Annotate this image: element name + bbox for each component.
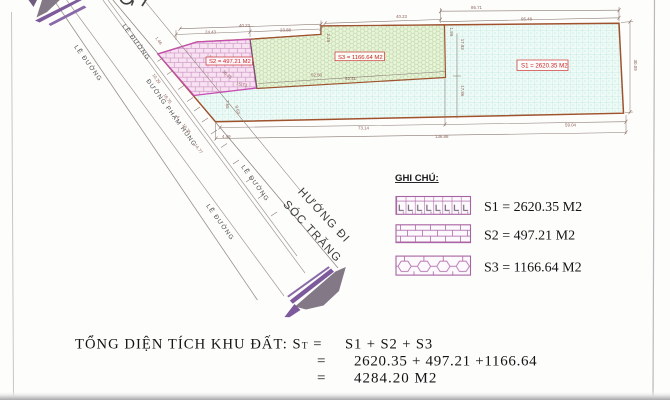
svg-text:52.50: 52.50 <box>311 73 323 78</box>
svg-text:40.23: 40.23 <box>396 14 408 19</box>
svg-text:62.41: 62.41 <box>345 76 357 81</box>
svg-text:73.14: 73.14 <box>358 126 370 131</box>
svg-text:TỔNG DIỆN TÍCH KHU ĐẤT: ST =S1: TỔNG DIỆN TÍCH KHU ĐẤT: ST =S1 + S2 + S3 <box>75 335 433 353</box>
svg-text:86.71: 86.71 <box>471 5 483 10</box>
svg-text:S2 = 497.21 M2: S2 = 497.21 M2 <box>209 59 251 65</box>
svg-text:GHI CHÚ:: GHI CHÚ: <box>395 172 439 184</box>
svg-text:136.88: 136.88 <box>435 134 449 139</box>
svg-text:59.04: 59.04 <box>565 123 577 128</box>
svg-text:2.19: 2.19 <box>326 34 331 43</box>
svg-text:95.48: 95.48 <box>521 16 533 21</box>
svg-text:S1 = 2620.35 M2: S1 = 2620.35 M2 <box>521 63 568 70</box>
svg-text:1.99: 1.99 <box>449 28 454 37</box>
svg-text:40.23: 40.23 <box>239 23 251 28</box>
svg-text:17.93: 17.93 <box>460 39 465 51</box>
svg-text:23.88: 23.88 <box>280 28 292 33</box>
svg-text:S3 = 1166.64 M2: S3 = 1166.64 M2 <box>338 55 383 61</box>
svg-text:17.86: 17.86 <box>460 85 465 97</box>
svg-text:30.09: 30.09 <box>633 60 638 72</box>
svg-text:S3 = 1166.64 M2: S3 = 1166.64 M2 <box>484 261 582 276</box>
svg-text:24.43: 24.43 <box>205 30 217 35</box>
svg-text:S2 = 497.21 M2: S2 = 497.21 M2 <box>484 229 575 244</box>
svg-text:S1 = 2620.35 M2: S1 = 2620.35 M2 <box>484 200 582 215</box>
svg-text:4.49: 4.49 <box>222 134 231 139</box>
svg-text:7.65: 7.65 <box>225 100 230 109</box>
